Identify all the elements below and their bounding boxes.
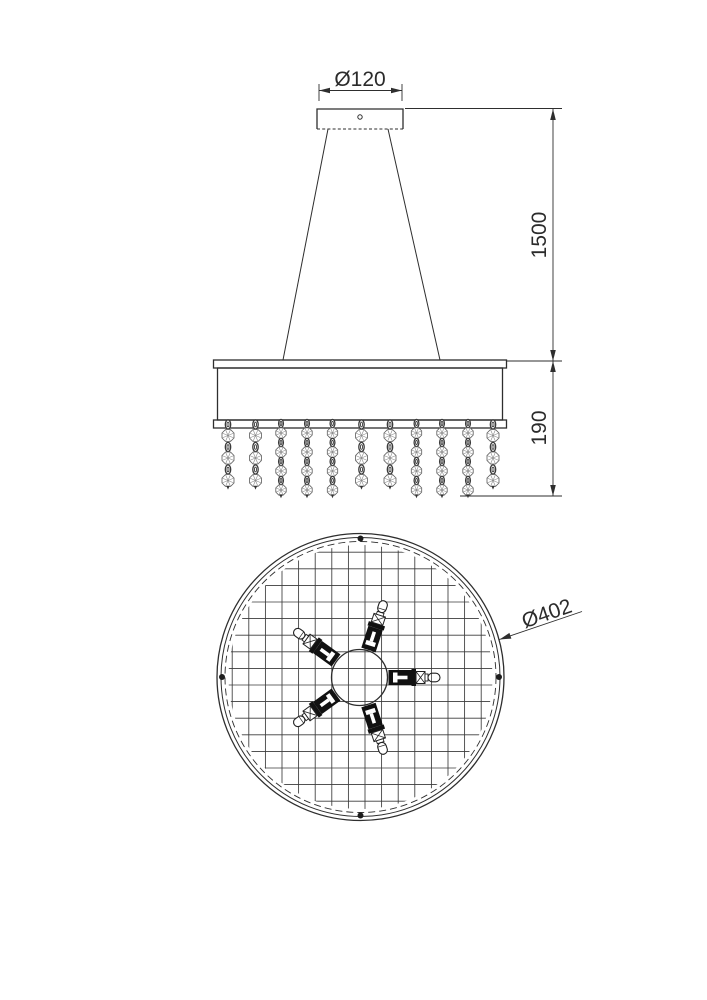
- mounting-dot: [219, 674, 225, 680]
- chain-link: [466, 419, 471, 427]
- chain-link: [387, 420, 392, 429]
- chain-link: [387, 465, 392, 474]
- chain-link: [305, 476, 310, 484]
- chain-link: [359, 442, 364, 451]
- suspension-wire-right: [388, 129, 440, 360]
- dimension-shade-diameter: Ø402: [500, 595, 583, 640]
- chain-link: [330, 419, 335, 427]
- bulb-capsule: [428, 673, 440, 682]
- ring-inner-circle: [221, 538, 500, 817]
- crystal-drop-tip: [226, 486, 229, 490]
- canopy-diameter-label: Ø120: [334, 68, 385, 91]
- shade-body: [218, 368, 503, 420]
- crystal-strand: [327, 419, 337, 498]
- crystal-drop-tip: [491, 486, 494, 490]
- socket-notch: [393, 673, 398, 683]
- crystal-strand: [437, 419, 447, 498]
- socket-notch: [398, 676, 408, 680]
- center-hub: [332, 650, 388, 706]
- socket-flange: [412, 669, 417, 686]
- mounting-dots: [219, 536, 502, 819]
- arrowhead-up: [550, 109, 556, 120]
- chain-link: [253, 465, 258, 474]
- crystal-drop-tip: [305, 494, 308, 498]
- chain-link: [305, 419, 310, 427]
- chain-link: [279, 438, 284, 446]
- chain-link: [440, 419, 445, 427]
- crystal-strand: [250, 420, 262, 490]
- chain-link: [466, 438, 471, 446]
- chandelier-dimension-drawing: Ø120 15: [0, 0, 707, 1000]
- chain-link: [490, 420, 495, 429]
- crystal-drop-tip: [440, 494, 443, 498]
- arrowhead-right: [391, 88, 402, 94]
- chain-link: [279, 419, 284, 427]
- crystal-strand: [302, 419, 312, 498]
- chain-link: [225, 442, 230, 451]
- crystal-strand: [487, 420, 499, 490]
- arrowhead-down: [550, 485, 556, 496]
- shade-drum: [214, 360, 507, 428]
- chain-link: [490, 465, 495, 474]
- crystal-strand: [222, 420, 234, 490]
- mounting-dot: [358, 536, 364, 542]
- mounting-dot: [358, 813, 364, 819]
- lamp-holder: [389, 669, 441, 686]
- mounting-dot: [496, 674, 502, 680]
- arrowhead-left: [319, 88, 330, 94]
- plan-view: Ø402: [217, 534, 582, 821]
- canopy: [317, 109, 403, 129]
- chain-link: [330, 457, 335, 465]
- suspension-wire-left: [283, 129, 328, 360]
- chain-link: [359, 420, 364, 429]
- chain-link: [225, 420, 230, 429]
- crystal-fringe: [222, 419, 499, 498]
- crystal-drop-tip: [331, 494, 334, 498]
- crystal-drop-tip: [279, 494, 282, 498]
- chain-link: [253, 442, 258, 451]
- crystal-strand: [356, 420, 368, 490]
- chain-link: [466, 457, 471, 465]
- chain-link: [305, 457, 310, 465]
- ring-outer-circle: [217, 534, 504, 821]
- dimension-suspension-drop: 1500: [405, 109, 562, 362]
- crystal-drop-tip: [254, 486, 257, 490]
- crystal-strand: [384, 420, 396, 490]
- chain-link: [414, 438, 419, 446]
- chain-link: [330, 476, 335, 484]
- chain-link: [414, 419, 419, 427]
- chain-link: [305, 438, 310, 446]
- crystal-drop-tip: [360, 486, 363, 490]
- chain-link: [279, 457, 284, 465]
- shade-fringe-height-label: 190: [528, 410, 551, 445]
- arrowhead-up: [550, 361, 556, 372]
- drawing-sheet: Ø120 15: [0, 0, 707, 1000]
- dimension-canopy-diameter: Ø120: [319, 68, 402, 101]
- chain-link: [414, 476, 419, 484]
- crystal-strand: [276, 419, 286, 498]
- chain-link: [466, 476, 471, 484]
- leader-arrowhead: [500, 633, 512, 640]
- outer-ring: [217, 534, 504, 821]
- crystal-drop-tip: [415, 494, 418, 498]
- canopy-screw-hole: [358, 115, 362, 119]
- front-elevation: Ø120 15: [214, 68, 563, 498]
- chain-link: [440, 457, 445, 465]
- chain-link: [440, 476, 445, 484]
- chain-link: [414, 457, 419, 465]
- chain-link: [279, 476, 284, 484]
- crystal-strand: [463, 419, 473, 498]
- crystal-grid: [227, 544, 494, 810]
- chain-link: [359, 465, 364, 474]
- suspension-drop-label: 1500: [528, 212, 551, 259]
- arrowhead-down: [550, 350, 556, 361]
- chain-link: [330, 438, 335, 446]
- chain-link: [387, 442, 392, 451]
- crystal-drop-tip: [388, 486, 391, 490]
- chain-link: [490, 442, 495, 451]
- shade-top-rim: [214, 360, 507, 368]
- chain-link: [440, 438, 445, 446]
- chain-link: [253, 420, 258, 429]
- shade-diameter-label: Ø402: [519, 595, 575, 633]
- chain-link: [225, 465, 230, 474]
- crystal-strand: [411, 419, 421, 498]
